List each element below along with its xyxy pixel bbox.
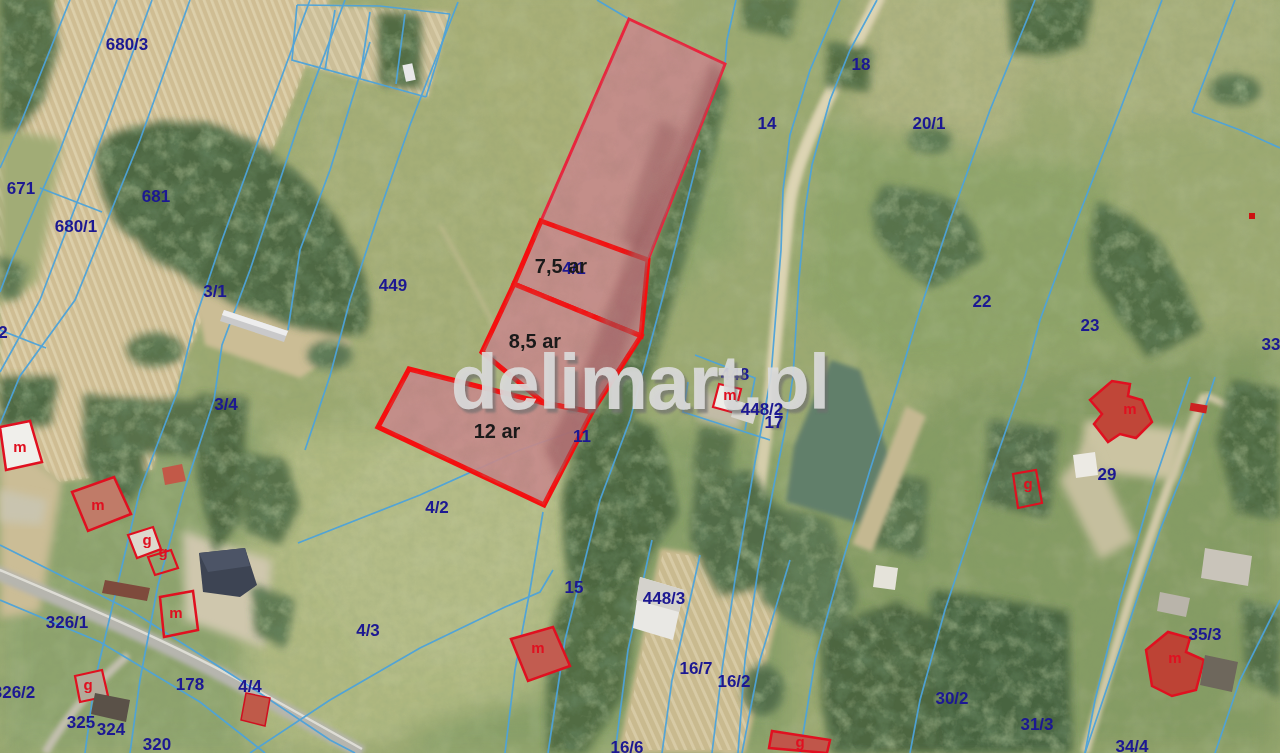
svg-text:17: 17: [765, 413, 784, 432]
svg-text:449: 449: [379, 276, 407, 295]
svg-text:23: 23: [1081, 316, 1100, 335]
svg-text:12 ar: 12 ar: [474, 420, 521, 442]
svg-text:671: 671: [7, 179, 35, 198]
svg-text:m: m: [1123, 400, 1136, 417]
svg-text:3/1: 3/1: [203, 282, 227, 301]
svg-text:m: m: [91, 496, 104, 513]
svg-text:326/1: 326/1: [46, 613, 89, 632]
svg-text:16/6: 16/6: [610, 738, 643, 753]
svg-text:4/2: 4/2: [425, 498, 449, 517]
svg-text:7,5 ar: 7,5 ar: [535, 255, 587, 277]
svg-text:4/4: 4/4: [238, 677, 262, 696]
svg-text:33: 33: [1262, 335, 1280, 354]
svg-text:31/3: 31/3: [1020, 715, 1053, 734]
svg-text:29: 29: [1098, 465, 1117, 484]
svg-text:324: 324: [97, 720, 126, 739]
svg-text:14: 14: [758, 114, 777, 133]
svg-text:35/3: 35/3: [1188, 625, 1221, 644]
svg-text:22: 22: [973, 292, 992, 311]
svg-text:3/4: 3/4: [214, 395, 238, 414]
svg-text:16/7: 16/7: [679, 659, 712, 678]
svg-text:18: 18: [852, 55, 871, 74]
svg-text:2: 2: [0, 323, 8, 342]
svg-text:15: 15: [565, 578, 584, 597]
svg-text:448/3: 448/3: [643, 589, 686, 608]
svg-text:178: 178: [176, 675, 204, 694]
svg-text:681: 681: [142, 187, 170, 206]
svg-text:m: m: [1168, 649, 1181, 666]
svg-text:680/1: 680/1: [55, 217, 98, 236]
svg-text:4/3: 4/3: [356, 621, 380, 640]
svg-text:m: m: [13, 438, 26, 455]
svg-text:g: g: [158, 543, 167, 560]
svg-text:g: g: [142, 531, 151, 548]
svg-text:680/3: 680/3: [106, 35, 149, 54]
svg-text:g: g: [795, 733, 804, 750]
svg-text:m: m: [169, 604, 182, 621]
svg-text:11: 11: [573, 427, 591, 446]
svg-text:34/4: 34/4: [1115, 737, 1149, 753]
svg-text:16/2: 16/2: [717, 672, 750, 691]
svg-text:g: g: [83, 676, 92, 693]
svg-text:325: 325: [67, 713, 95, 732]
svg-text:20/1: 20/1: [912, 114, 945, 133]
svg-text:326/2: 326/2: [0, 683, 35, 702]
svg-text:8,5 ar: 8,5 ar: [509, 330, 561, 352]
svg-text:30/2: 30/2: [935, 689, 968, 708]
svg-text:m: m: [531, 639, 544, 656]
svg-text:g: g: [1023, 475, 1032, 492]
svg-text:m: m: [723, 386, 736, 403]
svg-text:320: 320: [143, 735, 171, 753]
